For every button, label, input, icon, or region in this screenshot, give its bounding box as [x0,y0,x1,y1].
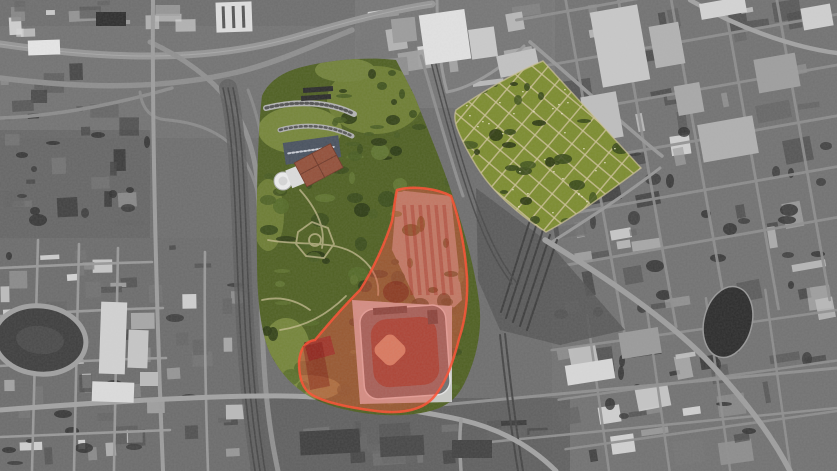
aerial-map [0,0,837,471]
photo-grain-overlay [0,0,837,471]
aerial-map-viewport [0,0,837,471]
